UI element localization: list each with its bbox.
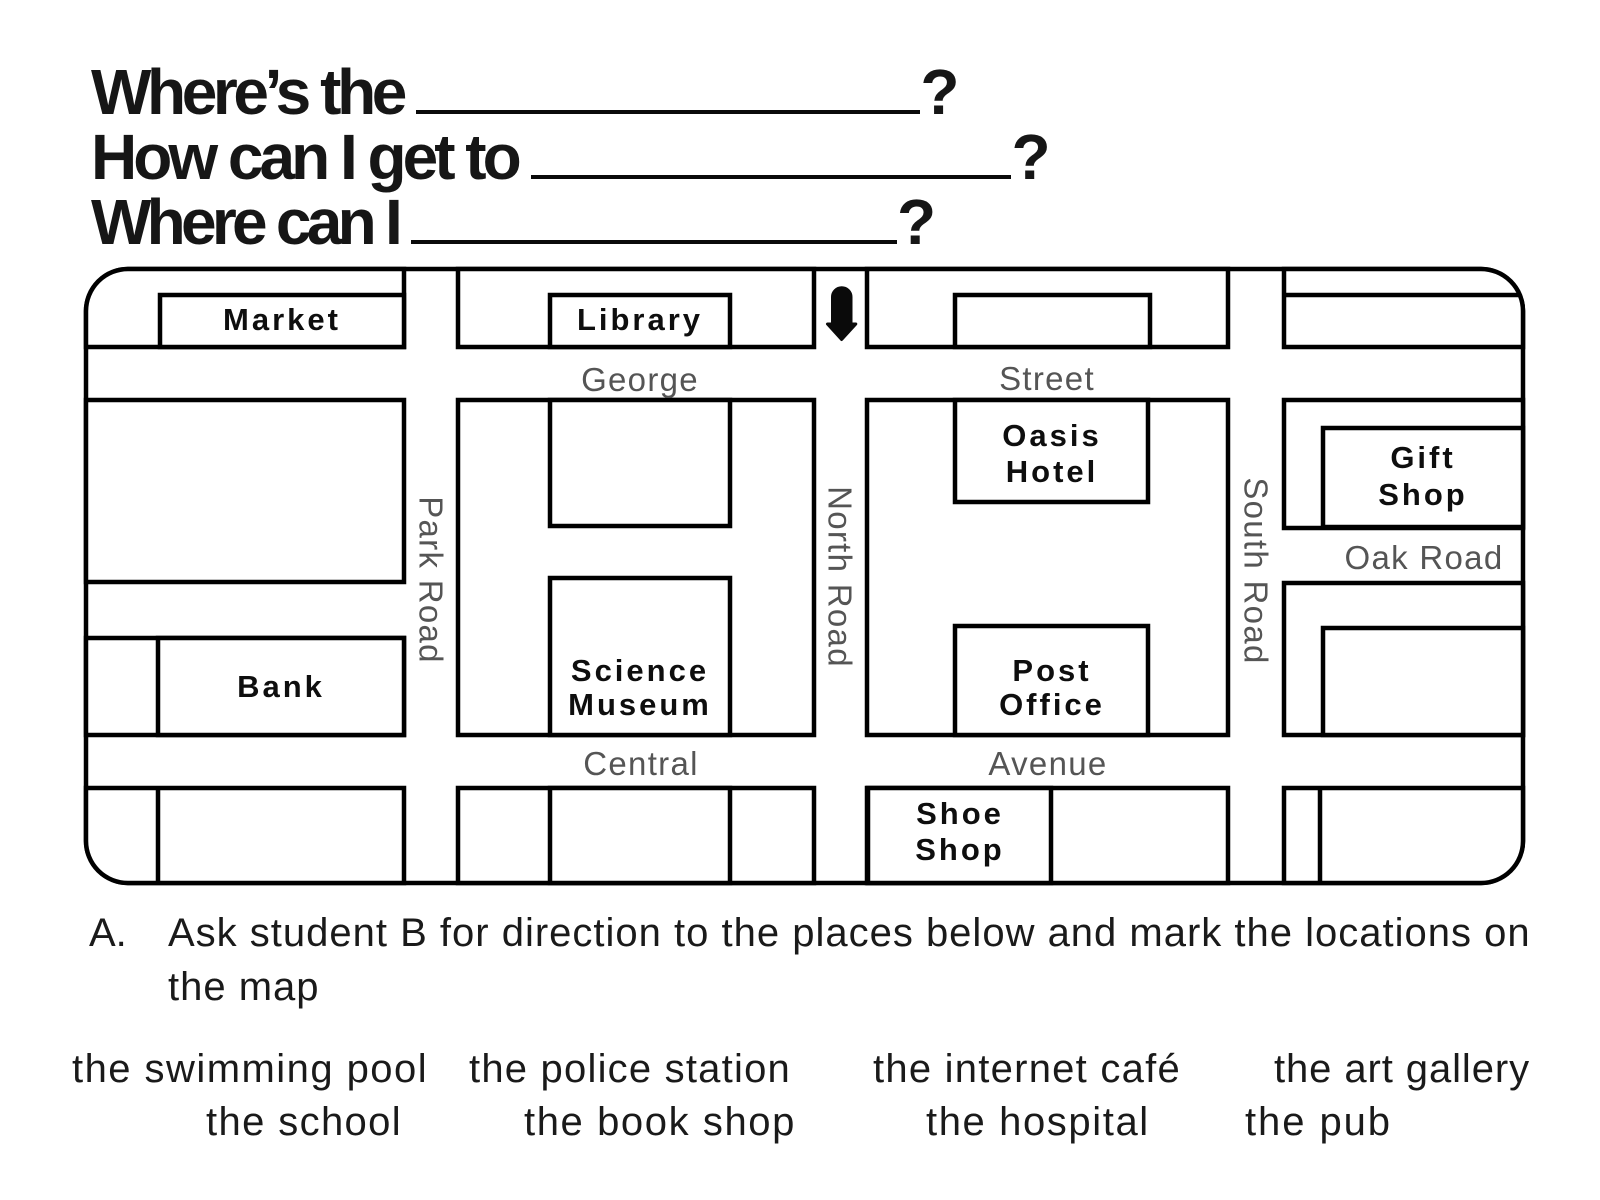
svg-text:George: George [581, 361, 699, 398]
svg-text:North Road: North Road [822, 486, 859, 668]
svg-text:Oak Road: Oak Road [1345, 539, 1504, 576]
svg-text:Oasis: Oasis [1002, 418, 1101, 453]
svg-text:Gift: Gift [1390, 440, 1455, 475]
svg-text:Museum: Museum [568, 687, 712, 722]
svg-text:Park Road: Park Road [413, 496, 450, 664]
svg-text:Shop: Shop [1378, 477, 1468, 512]
svg-text:Shop: Shop [915, 832, 1005, 867]
svg-text:Shoe: Shoe [916, 796, 1004, 831]
svg-text:Office: Office [999, 687, 1105, 722]
svg-text:Post: Post [1012, 653, 1091, 688]
svg-text:Avenue: Avenue [988, 745, 1107, 782]
svg-text:Street: Street [999, 360, 1095, 397]
svg-text:Hotel: Hotel [1006, 454, 1099, 489]
svg-text:Central: Central [583, 745, 698, 782]
svg-text:South Road: South Road [1238, 477, 1275, 664]
svg-text:Library: Library [577, 302, 703, 337]
svg-text:Bank: Bank [237, 669, 325, 704]
svg-text:Science: Science [571, 653, 709, 688]
svg-text:Market: Market [223, 302, 341, 337]
